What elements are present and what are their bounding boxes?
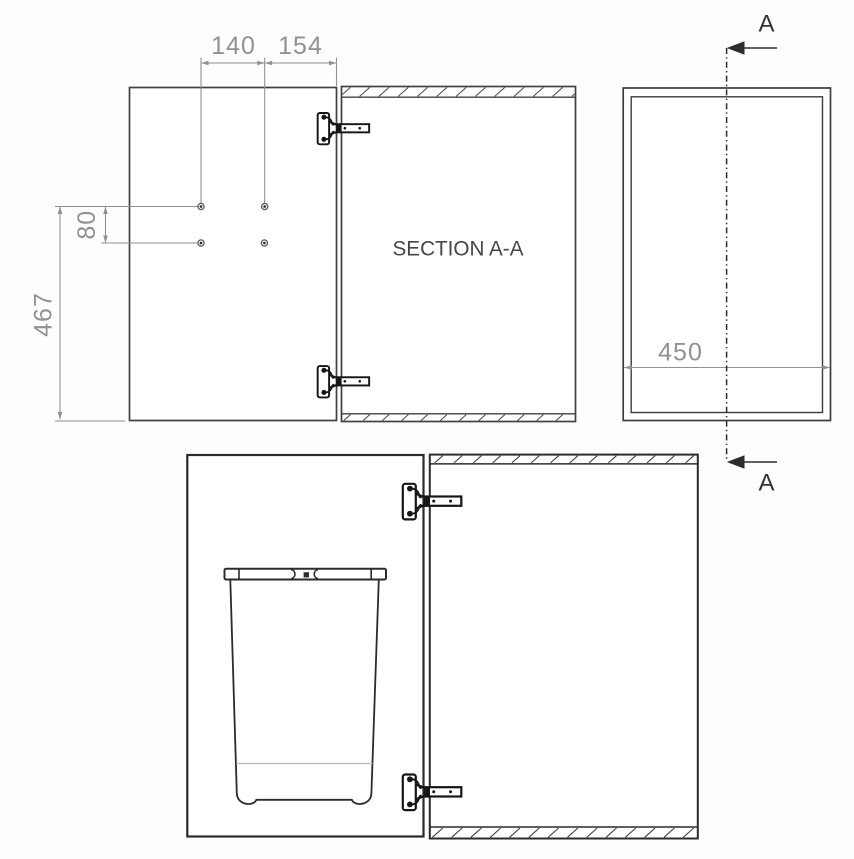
svg-text:467: 467 [30,292,58,337]
svg-text:80: 80 [73,210,101,240]
svg-text:SECTION A-A: SECTION A-A [393,237,525,261]
svg-text:140: 140 [211,32,256,60]
svg-text:154: 154 [278,32,323,60]
svg-text:A: A [758,11,774,38]
svg-text:A: A [758,470,774,497]
svg-text:450: 450 [658,339,703,367]
